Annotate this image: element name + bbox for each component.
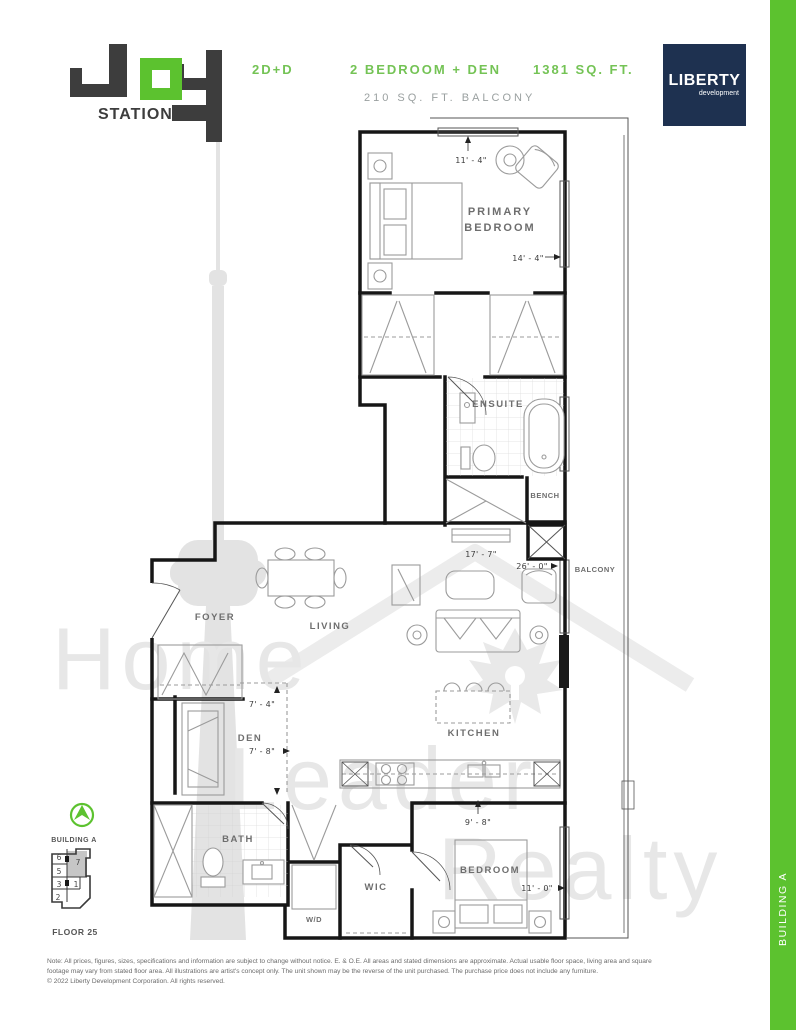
keyplan-unit-3: 3 xyxy=(57,880,62,889)
label-ensuite: ENSUITE xyxy=(472,399,524,410)
keyplan-unit-2: 2 xyxy=(56,893,61,902)
unit-type-label: 2 BEDROOM + DEN xyxy=(350,62,501,77)
foyer-closet xyxy=(158,645,242,699)
label-bench: BENCH xyxy=(530,491,559,500)
balcony-area-label: 210 SQ. FT. BALCONY xyxy=(364,92,535,104)
north-arrow-icon xyxy=(71,804,93,826)
label-living: LIVING xyxy=(310,621,351,632)
label-primary-line1: PRIMARY xyxy=(468,206,532,218)
dim-bedroom-width: 9' - 8" xyxy=(465,818,491,827)
dim-ensuite-width: 17' - 7" xyxy=(465,550,497,559)
dining-table xyxy=(256,548,346,608)
keyplan-footprint: 6 7 5 3 1 2 xyxy=(52,849,90,908)
label-foyer: FOYER xyxy=(195,612,235,623)
label-wd: W/D xyxy=(306,915,322,924)
floorplan-sheet: Home Leader Realty STATION 2D+D 2 BEDROO… xyxy=(0,0,796,1030)
washer-dryer xyxy=(292,805,336,909)
legal-fine-print: Note: All prices, figures, sizes, specif… xyxy=(47,957,669,988)
dim-balcony-length: 26' - 0" xyxy=(516,562,548,571)
label-bedroom: BEDROOM xyxy=(460,865,520,876)
dim-den-depth: 7' - 8" xyxy=(249,747,275,756)
primary-closets xyxy=(362,295,563,375)
logo-station-label: STATION xyxy=(98,106,173,123)
dim-den-width: 7' - 4" xyxy=(249,700,275,709)
unit-area-label: 1381 SQ. FT. xyxy=(533,62,634,77)
disclaimer-note: Note: All prices, figures, sizes, specif… xyxy=(47,958,652,975)
living-furniture xyxy=(392,565,556,652)
keyplan-unit-1: 1 xyxy=(74,880,79,889)
keyplan-unit-7: 7 xyxy=(76,858,81,867)
dim-bedroom-depth: 11' - 0" xyxy=(521,884,553,893)
entry-door xyxy=(148,583,180,638)
developer-name: LIBERTY xyxy=(669,73,741,89)
label-den: DEN xyxy=(238,733,263,744)
dim-primary-width: 11' - 4" xyxy=(455,156,487,165)
dimension-arrows xyxy=(274,136,565,891)
label-wic: WIC xyxy=(365,882,388,893)
building-sidebar: BUILDING A xyxy=(770,0,796,1030)
keyplan-floor-label: FLOOR 25 xyxy=(52,927,98,937)
keyplan-unit-6: 6 xyxy=(57,853,62,862)
keyplan-building-label: BUILDING A xyxy=(51,837,97,844)
building-keyplan: BUILDING A 6 7 5 3 1 2 FLOOR 25 xyxy=(44,798,154,948)
sidebar-building-label: BUILDING A xyxy=(777,872,789,946)
label-primary-line2: BEDROOM xyxy=(464,222,535,234)
copyright-line: © 2022 Liberty Development Corporation. … xyxy=(47,978,225,985)
label-balcony: BALCONY xyxy=(575,565,616,574)
label-bath: BATH xyxy=(222,834,254,845)
label-kitchen: KITCHEN xyxy=(448,728,501,739)
sliding-door-panel xyxy=(559,635,569,688)
bath xyxy=(154,803,288,897)
joy-station-logo: STATION xyxy=(68,42,238,144)
liberty-development-logo: LIBERTY development xyxy=(663,44,746,126)
keyplan-unit-5: 5 xyxy=(57,867,62,876)
dim-primary-depth: 14' - 4" xyxy=(512,254,544,263)
developer-sub: development xyxy=(699,90,739,97)
unit-model-code: 2D+D xyxy=(252,62,294,77)
